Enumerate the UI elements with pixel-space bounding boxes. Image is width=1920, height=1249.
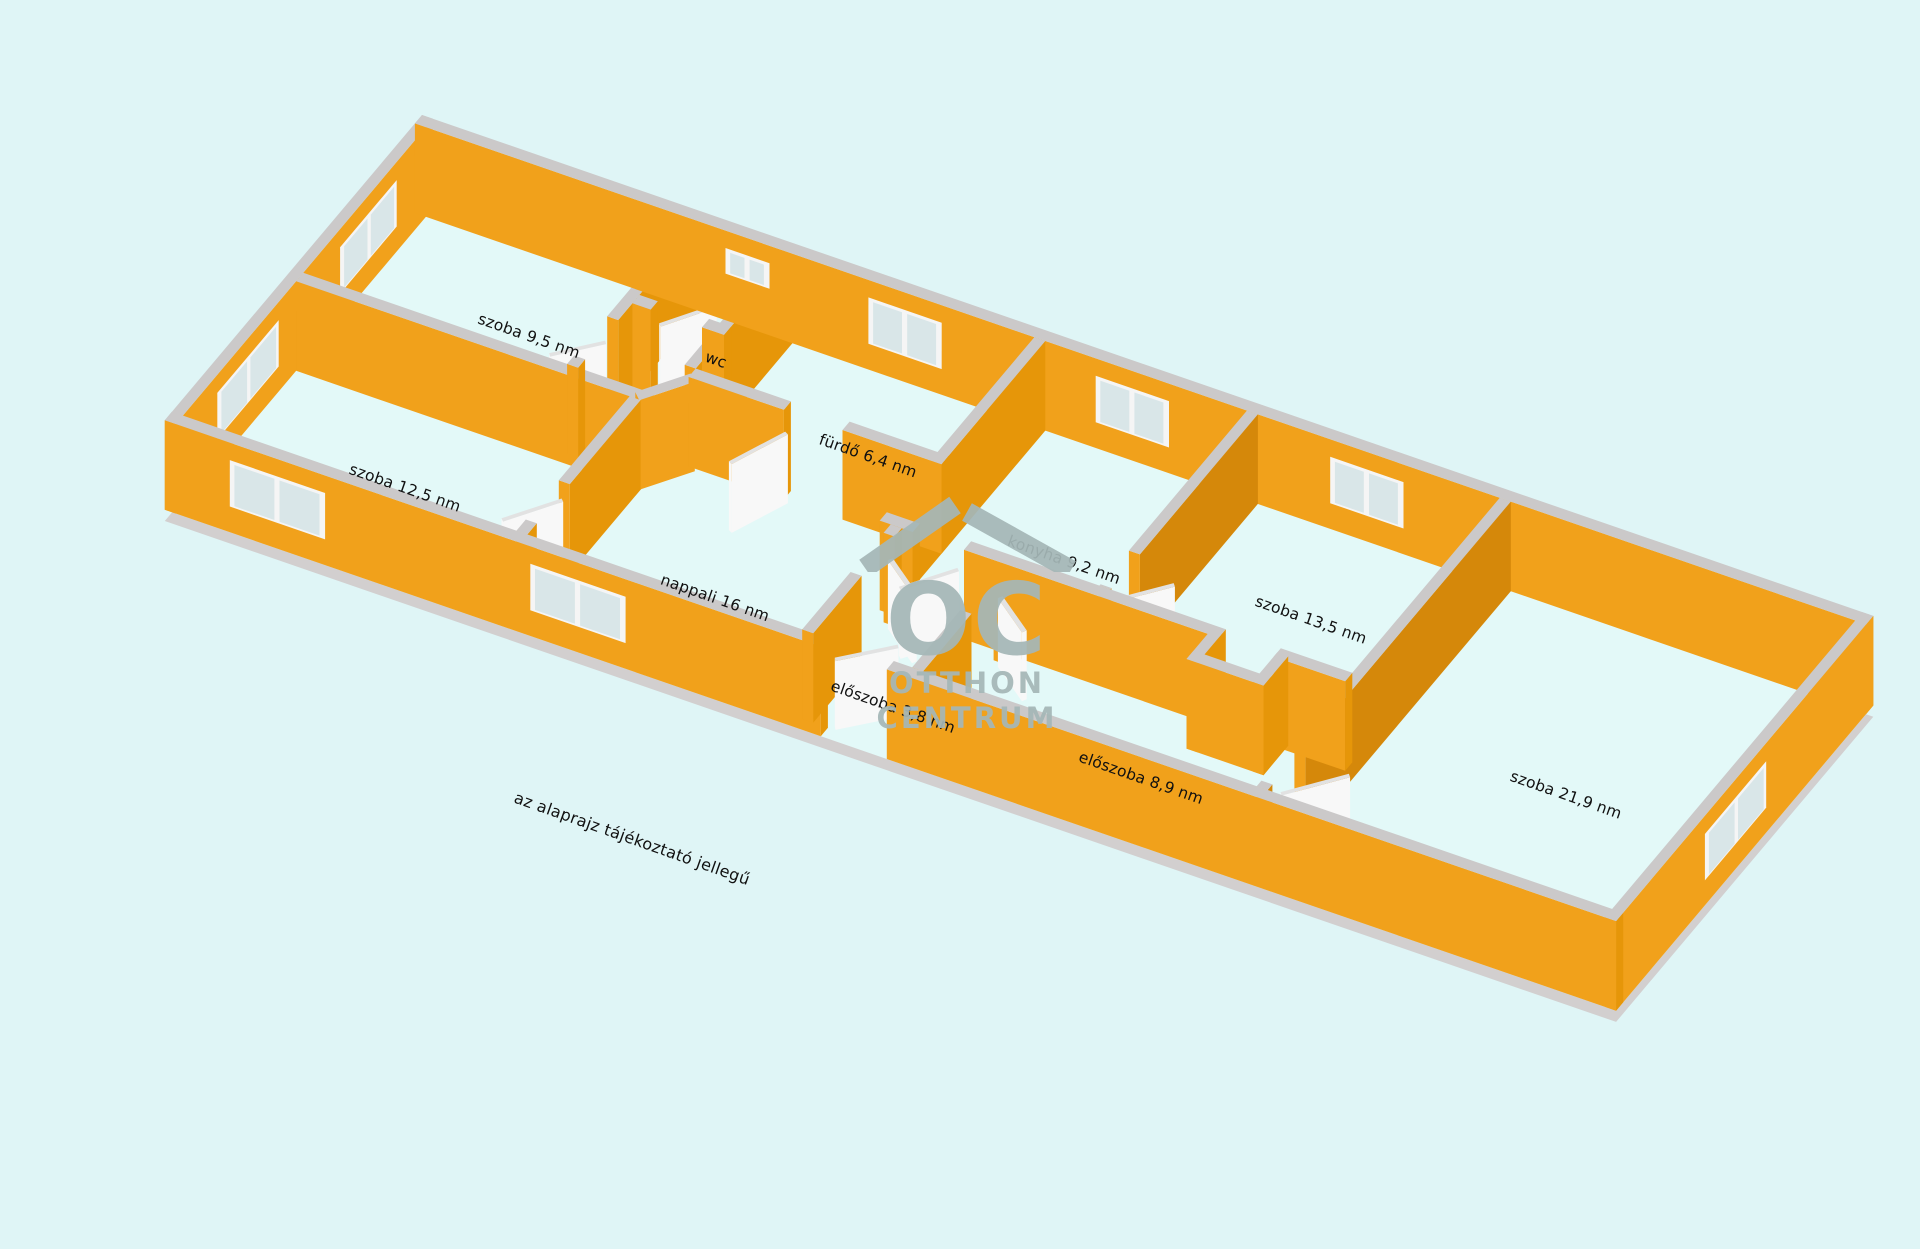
floorplan-3d-scene: [0, 0, 1920, 1249]
floorplan-canvas: szoba 9,5 nmszoba 12,5 nmnappali 16 nmwc…: [0, 0, 1920, 1249]
